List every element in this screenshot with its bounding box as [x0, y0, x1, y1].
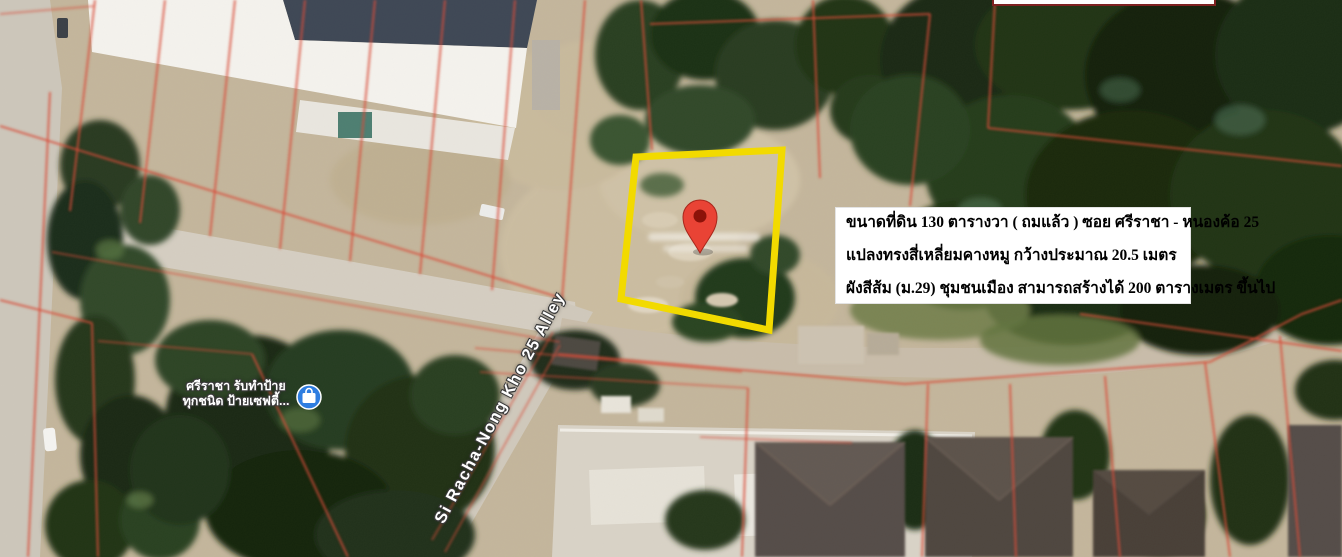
satellite-map-screenshot: Si Racha-Nong Kho 25 Alley ศรีราชา รับทำ… [0, 0, 1342, 557]
poi-business-label[interactable]: ศรีราชา รับทำป้าย ทุกชนิด ป้ายเซฟตี้... [175, 379, 297, 409]
poi-label-line1: ศรีราชา รับทำป้าย [175, 379, 297, 394]
info-line-2: แปลงทรงสี่เหลี่ยมคางหมู กว้างประมาณ 20.5… [846, 246, 1180, 265]
property-info-box: ขนาดที่ดิน 130 ตารางวา ( ถมแล้ว ) ซอย ศร… [835, 207, 1191, 304]
poi-marker-icon[interactable] [297, 385, 321, 409]
info-line-1: ขนาดที่ดิน 130 ตารางวา ( ถมแล้ว ) ซอย ศร… [846, 213, 1180, 232]
info-line-3: ผังสีส้ม (ม.29) ชุมชนเมือง สามารถสร้างได… [846, 279, 1180, 298]
poi-label-line2: ทุกชนิด ป้ายเซฟตี้... [175, 394, 297, 409]
